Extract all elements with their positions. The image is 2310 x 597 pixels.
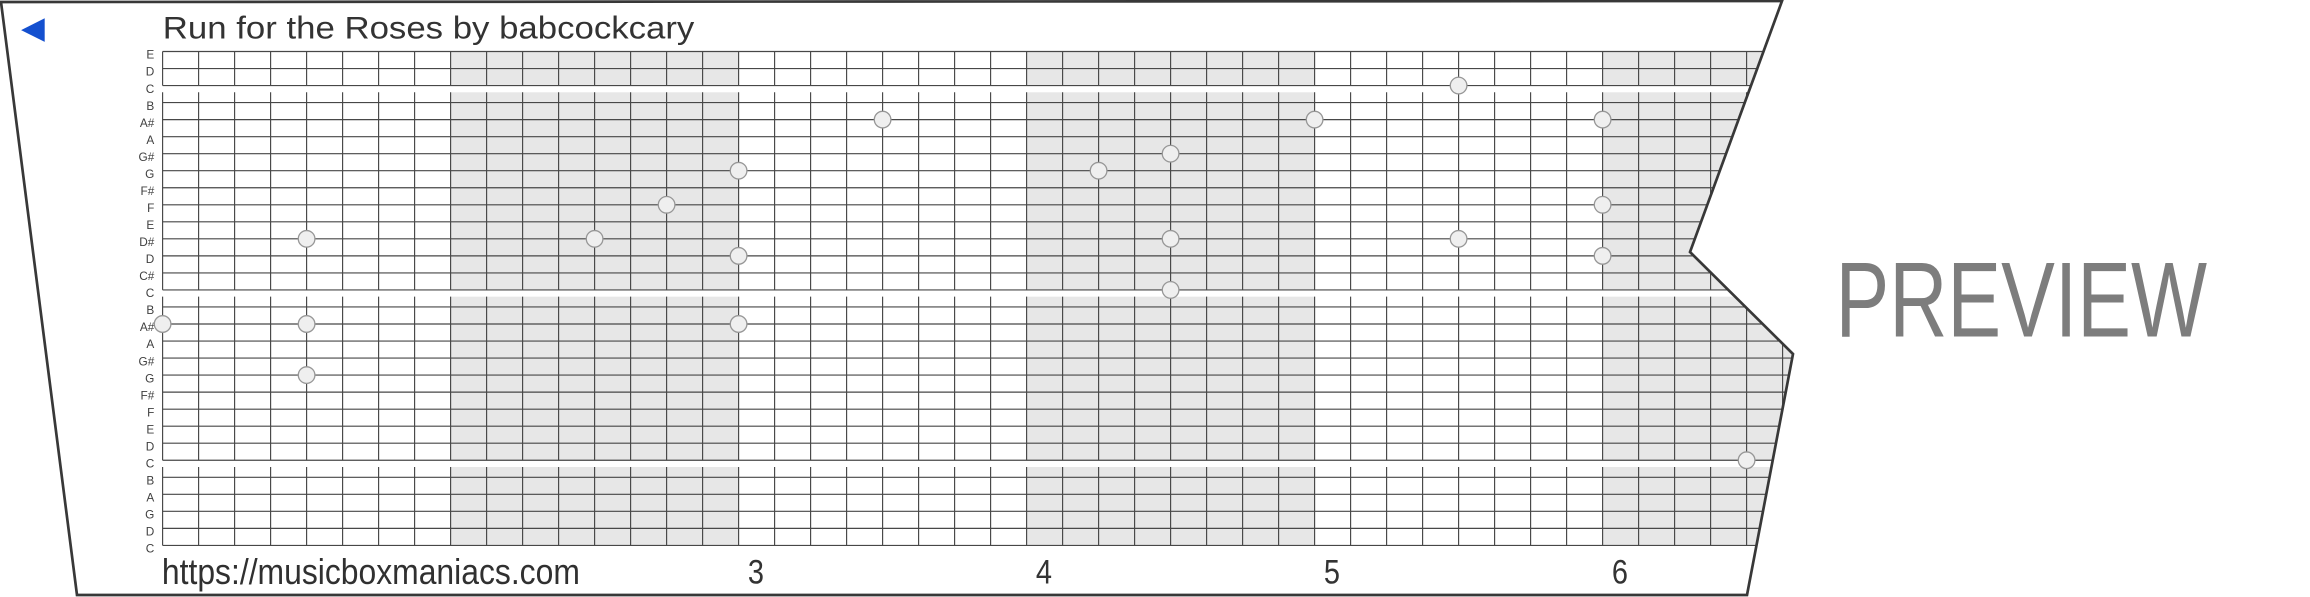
svg-text:PREVIEW: PREVIEW: [1836, 241, 2208, 361]
svg-text:E: E: [146, 48, 154, 62]
svg-text:5: 5: [1324, 552, 1340, 591]
svg-text:B: B: [146, 474, 154, 488]
svg-text:D: D: [146, 439, 155, 453]
svg-text:D: D: [146, 525, 155, 539]
svg-text:G: G: [145, 508, 154, 522]
svg-text:Run for the Roses by babcockca: Run for the Roses by babcockcary: [163, 10, 695, 46]
svg-text:3: 3: [748, 552, 764, 591]
svg-text:G: G: [145, 371, 154, 385]
svg-text:A#: A#: [140, 320, 155, 334]
svg-text:A: A: [146, 133, 154, 147]
svg-text:C: C: [146, 82, 155, 96]
svg-text:https://musicboxmaniacs.com: https://musicboxmaniacs.com: [162, 551, 580, 592]
svg-text:F#: F#: [141, 184, 155, 198]
svg-text:F: F: [147, 201, 154, 215]
svg-text:G#: G#: [139, 150, 155, 164]
svg-text:C: C: [146, 286, 155, 300]
svg-text:E: E: [146, 422, 154, 436]
svg-text:A#: A#: [140, 116, 155, 130]
svg-text:B: B: [146, 303, 154, 317]
svg-text:G: G: [145, 167, 154, 181]
svg-text:F#: F#: [141, 388, 155, 402]
svg-text:D: D: [146, 252, 155, 266]
svg-text:6: 6: [1612, 552, 1628, 591]
svg-text:F: F: [147, 405, 154, 419]
svg-text:4: 4: [1036, 552, 1052, 591]
svg-text:C: C: [146, 542, 155, 556]
svg-text:A: A: [146, 337, 154, 351]
svg-text:D#: D#: [139, 235, 155, 249]
svg-text:E: E: [146, 218, 154, 232]
svg-text:A: A: [146, 491, 154, 505]
svg-text:C: C: [146, 456, 155, 470]
svg-text:G#: G#: [139, 354, 155, 368]
svg-text:D: D: [146, 65, 155, 79]
svg-text:C#: C#: [139, 269, 155, 283]
svg-text:B: B: [146, 99, 154, 113]
